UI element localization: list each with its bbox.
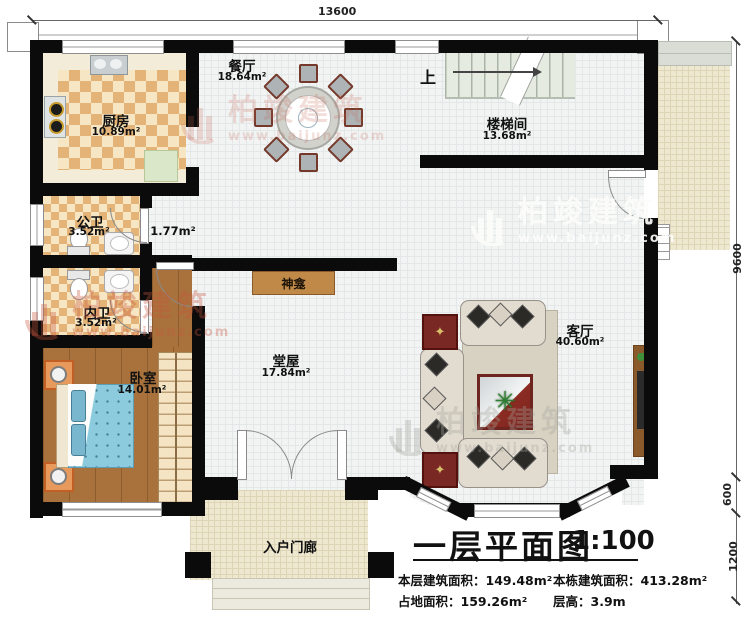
stat-label: 层高： (553, 594, 591, 609)
bed-pillow (71, 424, 86, 456)
kitchen-stove (44, 96, 66, 138)
wall-kitchen-bottom (43, 183, 192, 196)
wall-exterior-right-lower (644, 218, 658, 479)
room-area-bath-private: 3.52m² (75, 317, 116, 329)
stair-direction-line (453, 71, 533, 73)
wall-hall-west-main (192, 306, 205, 502)
porch-pillar-right (368, 552, 394, 578)
dimension-line-right (736, 42, 737, 604)
floor-side-porch (658, 64, 730, 250)
window-dining-2 (395, 40, 439, 54)
lazy-susan (298, 108, 318, 128)
wardrobe-rail (175, 353, 177, 503)
window-kitchen (62, 40, 164, 54)
bed-pillow (71, 390, 86, 422)
sink-basin (110, 274, 129, 289)
window-bath-public (30, 204, 44, 246)
title-underline (413, 559, 638, 561)
room-area-hall: 17.84m² (262, 367, 311, 379)
room-area-dining: 18.64m² (218, 71, 267, 83)
room-area-passage: 1.77m² (150, 224, 195, 238)
floor-plan: ✳ ✦ ✦ 神龛 (0, 0, 750, 619)
room-area-living: 40.60m² (556, 336, 605, 348)
dining-chair (344, 108, 363, 127)
window-bedroom (62, 502, 162, 517)
stat-floor-area: 本层建筑面积：149.48m² (398, 570, 552, 589)
wall-bedroom-top (43, 335, 152, 348)
porch-pillar-left (185, 552, 211, 578)
sink-basin (110, 236, 129, 251)
exterior-sill-line (30, 34, 658, 36)
end-table: ✦ (422, 314, 458, 350)
room-label-entry-porch: 入户门廊 (263, 536, 317, 556)
stat-label: 占地面积： (398, 594, 461, 609)
end-table: ✦ (422, 452, 458, 488)
stat-storey-height: 层高：3.9m (553, 591, 626, 610)
plant-icon: ✳ (494, 389, 516, 415)
star-icon: ✦ (435, 325, 446, 340)
stair-arrow-head (533, 67, 542, 77)
coffee-table: ✳ (477, 374, 533, 430)
lamp (50, 366, 67, 383)
wall-bedroom-bottom-left (30, 502, 62, 516)
dining-chair (299, 64, 318, 83)
entry-door-leaf-right (337, 430, 347, 480)
entry-pier-left (205, 477, 238, 500)
sink-private (104, 270, 134, 293)
stat-value: 3.9m (591, 594, 626, 609)
drawing-scale: 1:100 (572, 526, 655, 556)
wall-exterior-right-upper (644, 40, 658, 170)
star-icon: ✦ (435, 463, 446, 478)
sink-bowl (94, 59, 106, 69)
entry-pier-right (345, 477, 378, 500)
room-area-bath-public: 3.52m² (68, 226, 109, 238)
dimension-top-width: 13600 (318, 5, 356, 18)
stat-value: 413.28m² (641, 573, 708, 588)
dimension-right-height: 9600 (731, 243, 744, 274)
dimension-line-top (32, 20, 658, 21)
lamp (50, 468, 67, 485)
window-bath-private (30, 277, 44, 321)
shrine-cabinet: 神龛 (252, 271, 335, 295)
wall-bath-divider (43, 255, 140, 268)
room-area-kitchen: 10.89m² (92, 126, 141, 138)
dining-chair (254, 108, 273, 127)
stairs-up-label: 上 (420, 64, 436, 88)
room-area-stairwell: 13.68m² (483, 130, 532, 142)
wall-bath-east-3 (140, 268, 152, 300)
shrine-label: 神龛 (281, 275, 305, 292)
stat-footprint-area: 占地面积：159.26m² (398, 591, 527, 610)
sink-bowl (110, 59, 122, 69)
stat-value: 149.48m² (486, 573, 553, 588)
stat-building-area: 本栋建筑面积：413.28m² (553, 570, 707, 589)
stat-label: 本栋建筑面积： (553, 573, 641, 588)
kitchen-mat (144, 150, 178, 182)
tv-screen (637, 371, 644, 429)
side-porch-step (658, 53, 732, 66)
stat-value: 159.26m² (461, 594, 528, 609)
wall-stairwell-bottom (420, 155, 658, 168)
dimension-right-porch: 600 (721, 483, 734, 506)
stat-label: 本层建筑面积： (398, 573, 486, 588)
porch-step (212, 598, 370, 610)
room-area-bedroom: 14.01m² (118, 384, 167, 396)
window-bay-bottom (474, 504, 560, 518)
dimension-right-steps: 1200 (727, 541, 740, 572)
toilet-private-bowl (70, 278, 88, 300)
burner (49, 119, 64, 134)
wall-kitchen-right-upper (186, 53, 199, 127)
floor-entry-porch (190, 490, 368, 580)
kitchen-sink (90, 55, 128, 75)
wall-shrine (192, 258, 397, 271)
burner (49, 102, 64, 117)
dining-chair (299, 153, 318, 172)
wardrobe (158, 352, 194, 504)
window-dining-1 (233, 40, 345, 54)
wall-bath-east-1 (140, 196, 152, 208)
